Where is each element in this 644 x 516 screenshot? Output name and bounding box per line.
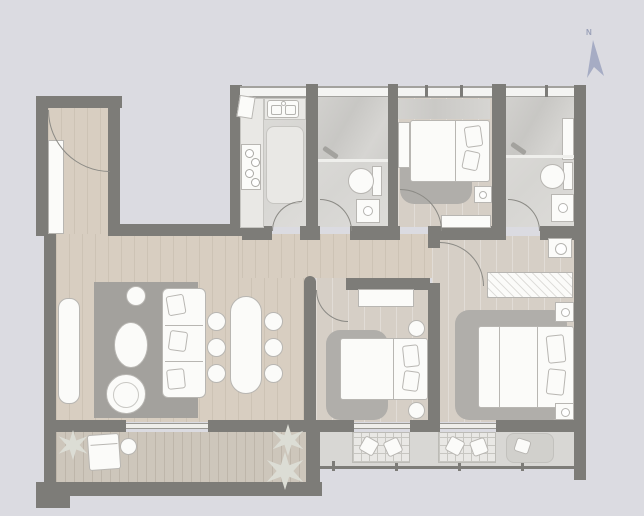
bath1-bedroom1-wall [388,85,398,236]
entry-closet [48,140,64,234]
dining-chair [207,364,226,383]
left-balcony-outer-wall [40,482,322,496]
bed2-blanket-fold [393,339,394,399]
bathroom1-sink [356,199,380,223]
kitchen-bath1-wall [306,85,318,236]
sofa [162,288,206,398]
balcony-side-table [120,438,137,455]
corridor-wall-a [242,226,272,240]
washer [548,238,572,258]
bedroom2-balcony-wall-b [410,420,440,432]
bedroom1-shelf [398,122,410,168]
bathroom2-sink [551,194,574,222]
corridor-wall-c [350,226,400,240]
stove-burner [245,149,254,158]
corridor-wall-d [438,226,506,240]
stove-burner [251,158,260,167]
bedroom2-nightstand [408,320,425,337]
bedroom1-bath2-wall [492,85,506,236]
bedroom3-balcony-wall [496,420,574,432]
dining-chair [264,364,283,383]
bedroom3-bed [478,326,574,408]
bottom-left-corner-wall [36,482,70,508]
side-table [126,286,146,306]
dining-chair [207,338,226,357]
sink-faucet [281,101,286,106]
mat-pillow [382,436,403,457]
sink-bowl-right [285,105,296,115]
bathroom2-shower-glass [506,155,574,158]
balcony-lounge-mat [438,432,496,463]
stove-burner [251,178,260,187]
bedroom3-balcony-slider [440,423,496,429]
bedroom1-bench [441,215,491,228]
balcony-lounge-mat [352,432,410,463]
dining-table [230,296,262,394]
bathroom2-niche [562,118,574,160]
window-mullion-1 [425,85,428,97]
bedroom1-bed [410,120,490,182]
living-bedroom2-wall [304,276,316,428]
sofa-seat-line [165,325,203,326]
bed1-pillow [464,125,484,148]
north-arrow-icon [578,36,614,82]
sofa-pillow [166,368,186,390]
notch-bottom-wall [108,224,242,236]
bed2-pillow [402,370,421,392]
balcony-lounge-chair [87,433,121,471]
bedroom2-balcony-wall-a [320,420,354,432]
armchair [106,374,146,414]
balcony-railing [320,466,580,469]
bathroom1-shower-glass [318,159,388,162]
corridor-floor [242,234,432,278]
coffee-table [114,322,148,368]
living-balcony-wall-a [44,420,126,432]
bedroom2-dresser [358,289,414,307]
mat-pillow [444,435,466,457]
living-balcony-slider [126,423,208,429]
nightstand-lamp [479,191,487,199]
nightstand-lamp [561,408,570,417]
bedroom3-nightstand [555,403,574,420]
bathroom1-toilet-bowl [348,168,374,194]
bedroom3-nightstand [555,302,574,322]
bed3-blanket-fold [537,327,538,407]
mat-pillow [358,435,380,457]
bedroom2-balcony-slider [354,423,410,429]
bedroom1-window-curtain [398,99,490,119]
bedroom2-bed [340,338,428,400]
window-mullion-3 [545,85,548,97]
bed3-blanket-line [499,327,500,407]
left-outer-wall [44,228,56,496]
bedroom2-nightstand [408,402,425,419]
dining-chair [264,312,283,331]
bathroom2-toilet-bowl [540,164,565,189]
railing-post-1 [332,461,335,471]
sofa-seat-line [165,361,203,362]
washer-door [555,243,567,255]
living-balcony-wall-b [208,420,306,432]
bed1-pillow [461,150,481,172]
lounge-fold-line [90,443,117,446]
tv-console [58,298,80,404]
lounge-pillow [513,437,532,455]
kitchen-sink [267,100,299,118]
stove-burner [245,169,254,178]
window-mullion-2 [460,85,463,97]
kitchen-stove [241,144,261,190]
bedroom2-bedroom3-wall [428,283,440,428]
bedroom3-wardrobe [487,272,573,298]
sink-bowl-left [271,105,282,115]
armchair-cushion [113,382,139,408]
entry-left-wall [36,96,48,236]
sofa-pillow [168,330,189,352]
mat-pillow [469,437,490,458]
bed3-pillow [546,334,567,364]
sofa-pillow [165,294,186,317]
nightstand-lamp [561,308,570,317]
bedroom1-nightstand [474,186,492,203]
right-outer-wall [574,85,586,480]
bathroom2-sink-basin [558,203,568,213]
kitchen-island [266,126,304,204]
bed2-pillow [402,344,420,368]
dining-chair [264,338,283,357]
north-compass: N [576,28,616,84]
dining-chair [207,312,226,331]
corridor-wall-b [300,226,320,240]
bed1-blanket-fold [455,121,456,181]
bed3-pillow [546,368,567,396]
bathroom1-sink-basin [363,206,373,216]
balcony-lounge-sofa [506,433,554,463]
kitchen-window-panel [236,95,255,119]
floor-plan: N [0,0,644,516]
